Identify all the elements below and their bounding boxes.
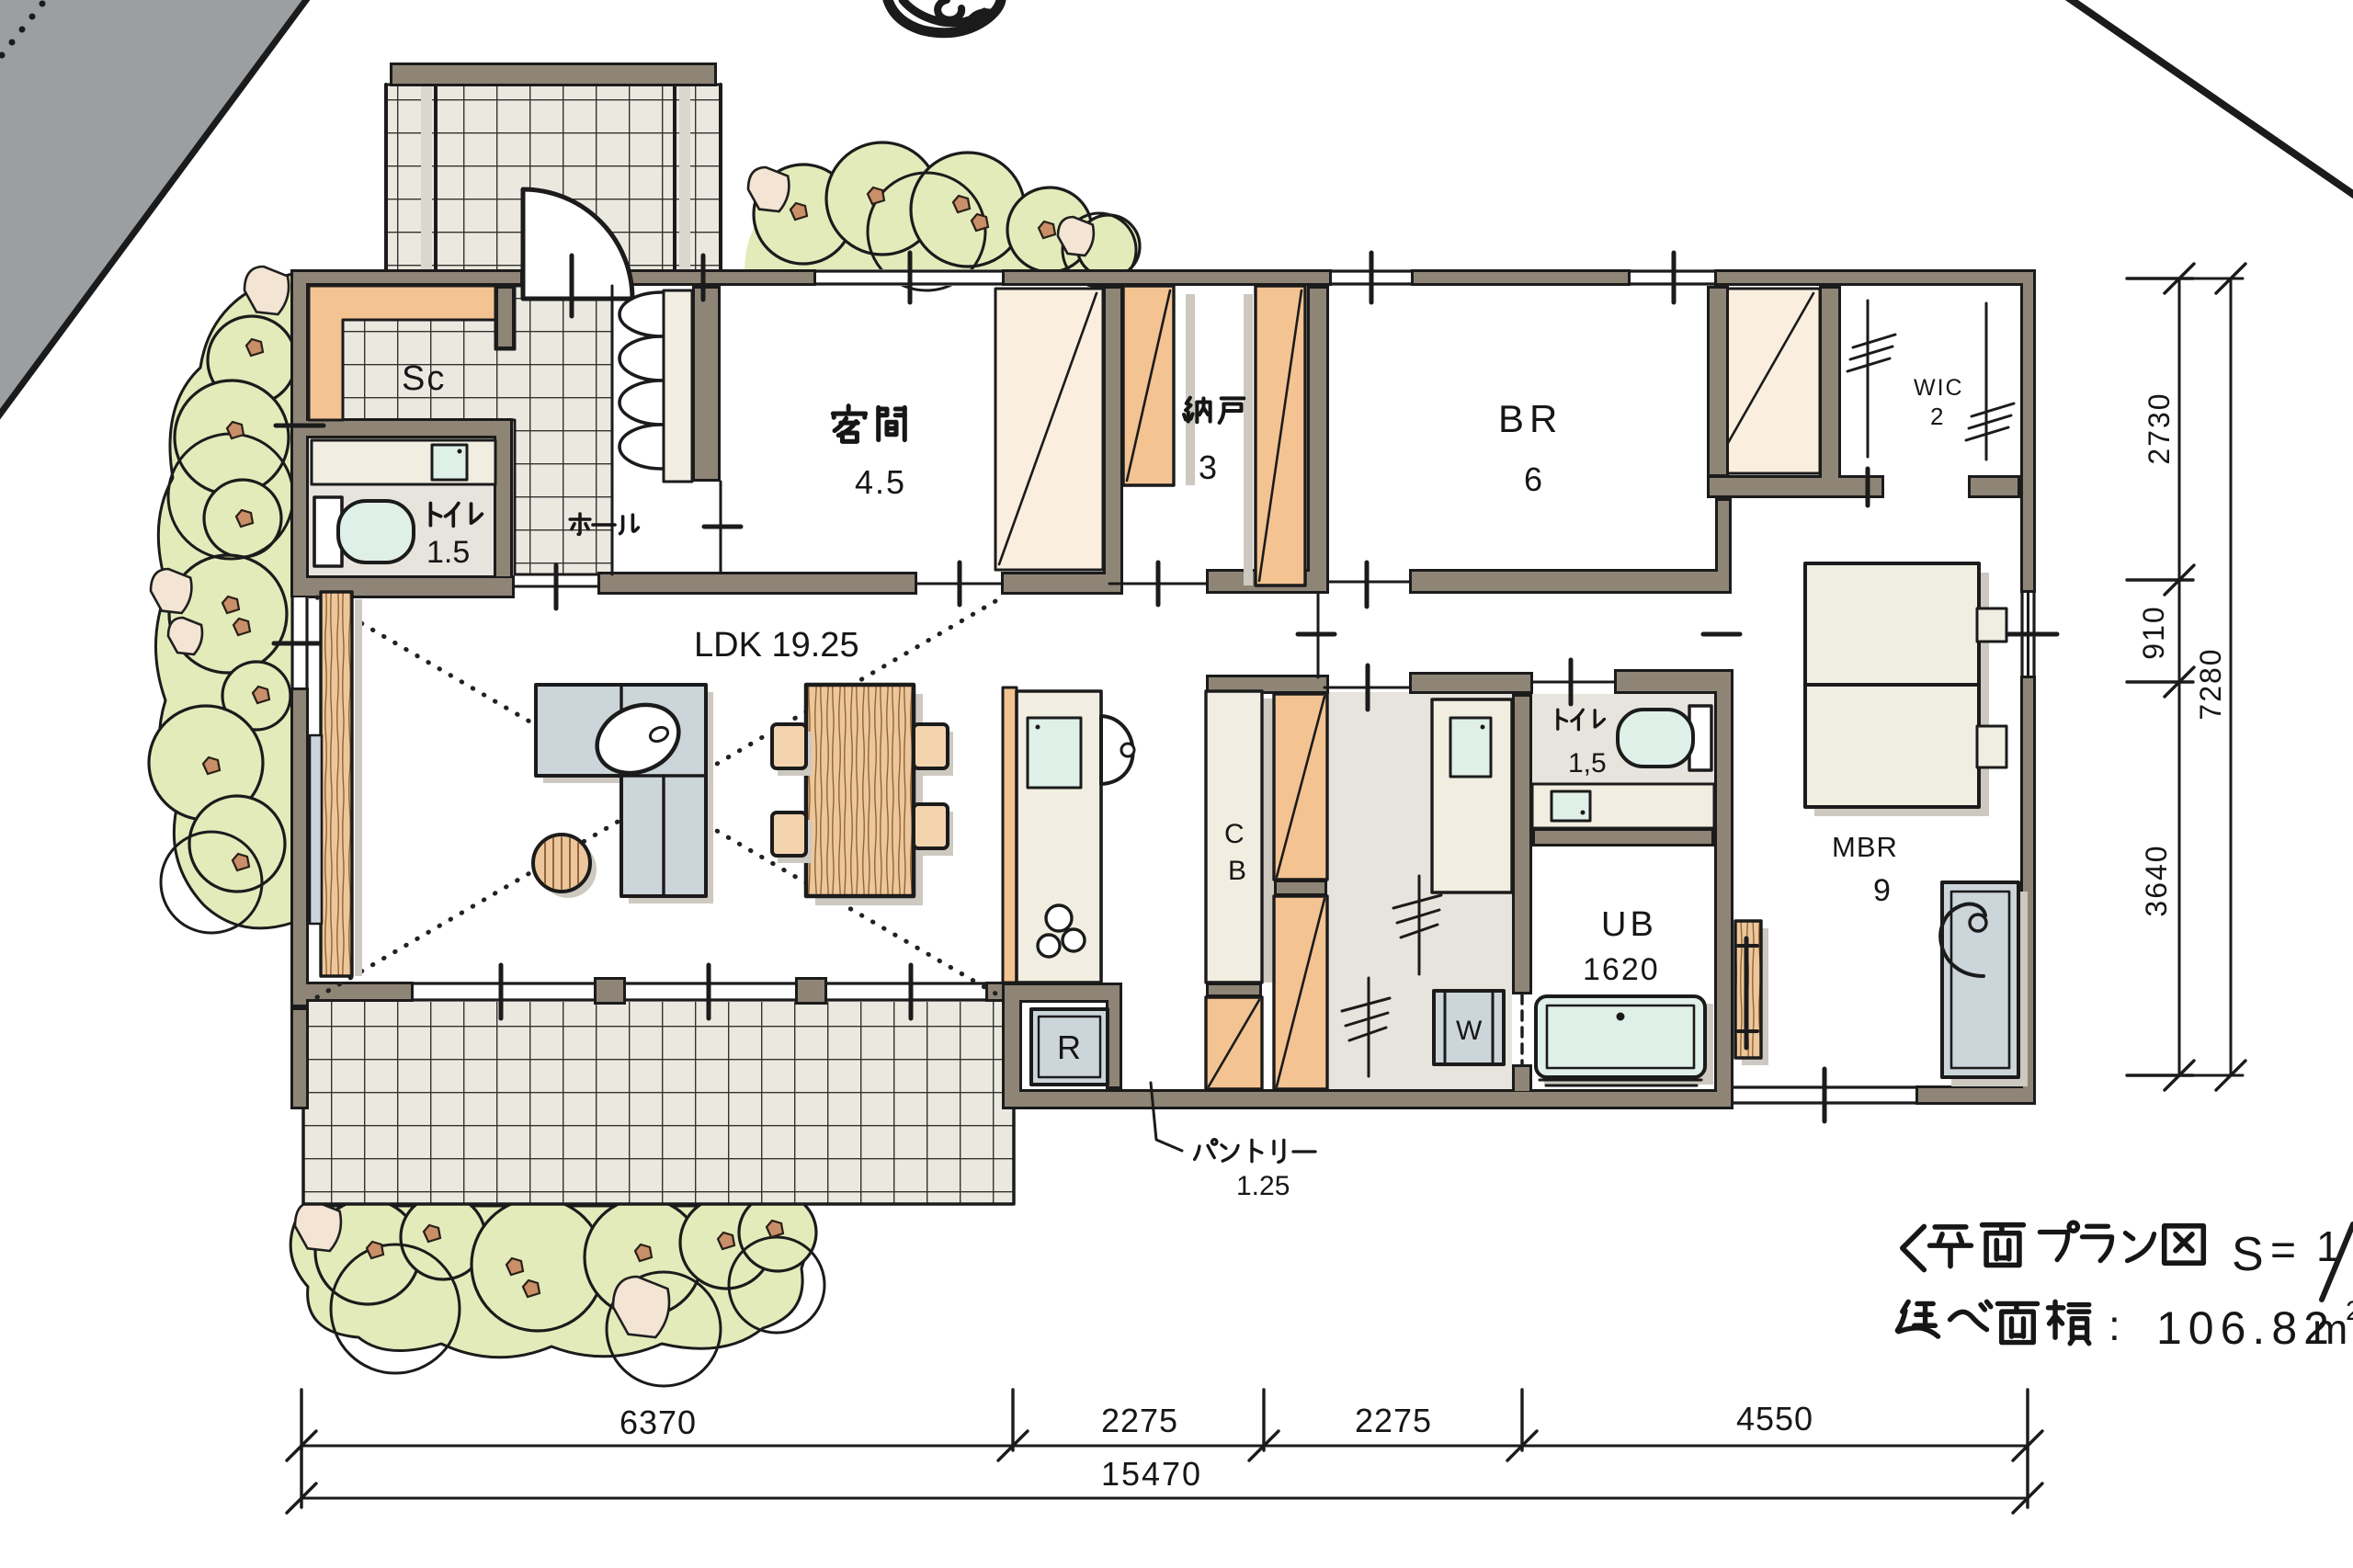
svg-text:2730: 2730	[2143, 392, 2176, 464]
svg-text:MBR: MBR	[1832, 831, 1898, 863]
svg-text:R: R	[1057, 1028, 1081, 1066]
svg-text:3640: 3640	[2140, 844, 2173, 916]
svg-text:1.25: 1.25	[1236, 1171, 1290, 1201]
svg-text:15470: 15470	[1101, 1455, 1202, 1493]
svg-text:1620: 1620	[1583, 952, 1660, 987]
svg-text:C: C	[1224, 819, 1245, 849]
svg-text:910: 910	[2137, 605, 2170, 659]
svg-text:6: 6	[1524, 460, 1542, 498]
svg-text:4.5: 4.5	[855, 463, 906, 501]
svg-text:9: 9	[1873, 873, 1891, 908]
svg-text:106.82: 106.82	[2156, 1302, 2336, 1354]
svg-text:=: =	[2270, 1226, 2296, 1275]
svg-text:Sc: Sc	[402, 359, 446, 398]
svg-text:WIC: WIC	[1914, 375, 1964, 401]
svg-text:7280: 7280	[2194, 647, 2227, 720]
svg-text:3: 3	[1199, 449, 1217, 486]
svg-text:UB: UB	[1601, 905, 1657, 944]
svg-text:LDK 19.25: LDK 19.25	[694, 626, 859, 665]
svg-text:2: 2	[1930, 403, 1943, 430]
svg-text::: :	[2109, 1301, 2120, 1349]
svg-text:S: S	[2232, 1228, 2264, 1281]
svg-text:6370: 6370	[620, 1403, 697, 1441]
svg-text:m: m	[2313, 1305, 2347, 1353]
svg-text:2: 2	[2346, 1296, 2353, 1326]
svg-text:W: W	[1456, 1016, 1483, 1046]
svg-text:2275: 2275	[1101, 1402, 1178, 1439]
svg-text:B: B	[1228, 856, 1246, 886]
svg-text:4550: 4550	[1736, 1400, 1813, 1437]
svg-text:1,5: 1,5	[1568, 748, 1607, 778]
svg-text:1.5: 1.5	[426, 535, 470, 570]
svg-text:BR: BR	[1498, 397, 1563, 440]
svg-text:2275: 2275	[1355, 1402, 1432, 1439]
